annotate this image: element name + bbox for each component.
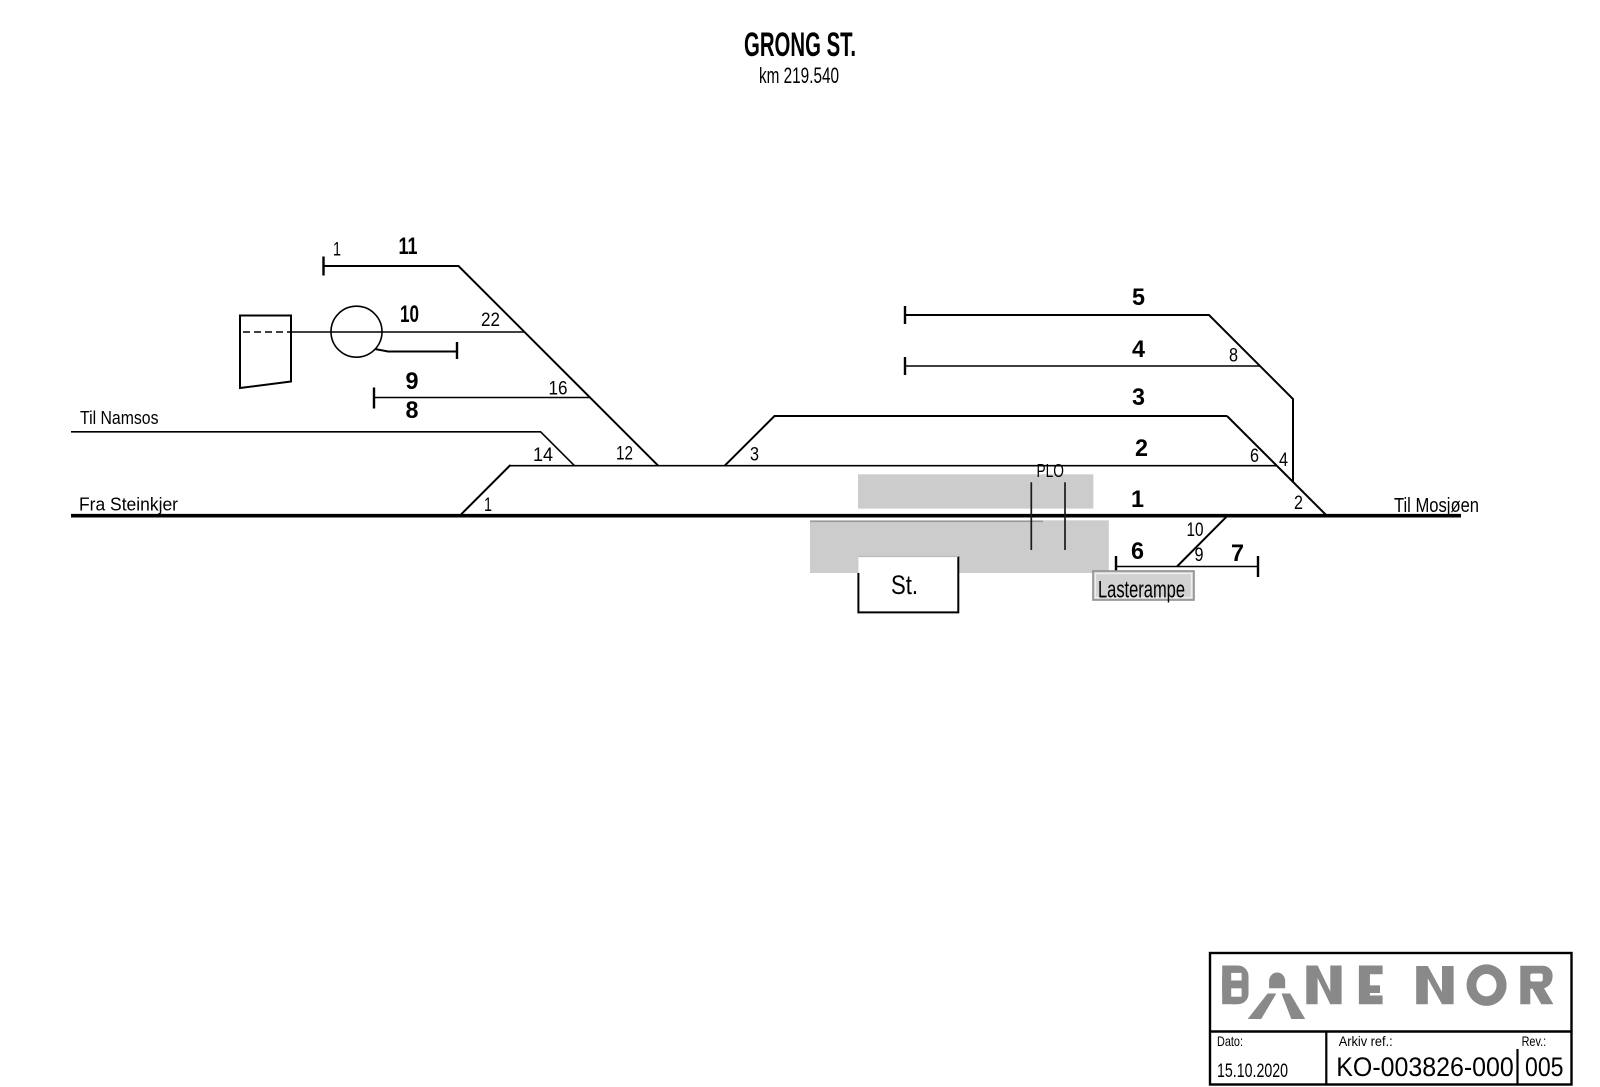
svg-text:4: 4 [1279,450,1288,471]
svg-text:8: 8 [406,397,419,424]
svg-text:3: 3 [750,445,759,466]
svg-text:9: 9 [406,368,419,395]
svg-text:22: 22 [481,310,500,331]
svg-text:Arkiv ref.:: Arkiv ref.: [1339,1033,1393,1049]
svg-text:PLO: PLO [1037,460,1065,481]
svg-text:Dato:: Dato: [1217,1033,1243,1049]
svg-text:1: 1 [333,240,341,261]
svg-text:10: 10 [400,301,419,328]
svg-text:km 219.540: km 219.540 [759,63,839,88]
svg-text:9: 9 [1195,545,1204,566]
svg-text:Til Namsos: Til Namsos [80,408,159,428]
svg-text:14: 14 [533,445,553,466]
svg-text:16: 16 [549,379,568,400]
svg-text:6: 6 [1131,538,1144,565]
svg-text:Rev.:: Rev.: [1522,1033,1547,1049]
svg-text:2: 2 [1135,435,1148,462]
svg-text:St.: St. [891,570,918,600]
svg-text:7: 7 [1231,540,1244,567]
svg-text:Fra Steinkjer: Fra Steinkjer [79,495,178,515]
svg-text:12: 12 [616,444,633,465]
svg-text:1: 1 [484,495,492,516]
svg-text:6: 6 [1250,446,1259,467]
svg-text:5: 5 [1132,284,1145,311]
svg-text:GRONG ST.: GRONG ST. [744,26,856,64]
svg-text:10: 10 [1187,520,1204,541]
svg-text:Til Mosjøen: Til Mosjøen [1394,495,1479,517]
svg-text:11: 11 [399,233,418,260]
svg-text:1: 1 [1131,486,1144,513]
svg-text:4: 4 [1132,336,1146,363]
svg-text:3: 3 [1132,384,1145,411]
svg-text:005: 005 [1525,1052,1564,1082]
svg-text:KO-003826-000: KO-003826-000 [1336,1052,1514,1082]
svg-text:8: 8 [1229,346,1238,367]
svg-text:Lasterampe: Lasterampe [1098,577,1185,604]
svg-text:15.10.2020: 15.10.2020 [1217,1061,1288,1082]
svg-text:2: 2 [1294,493,1303,514]
